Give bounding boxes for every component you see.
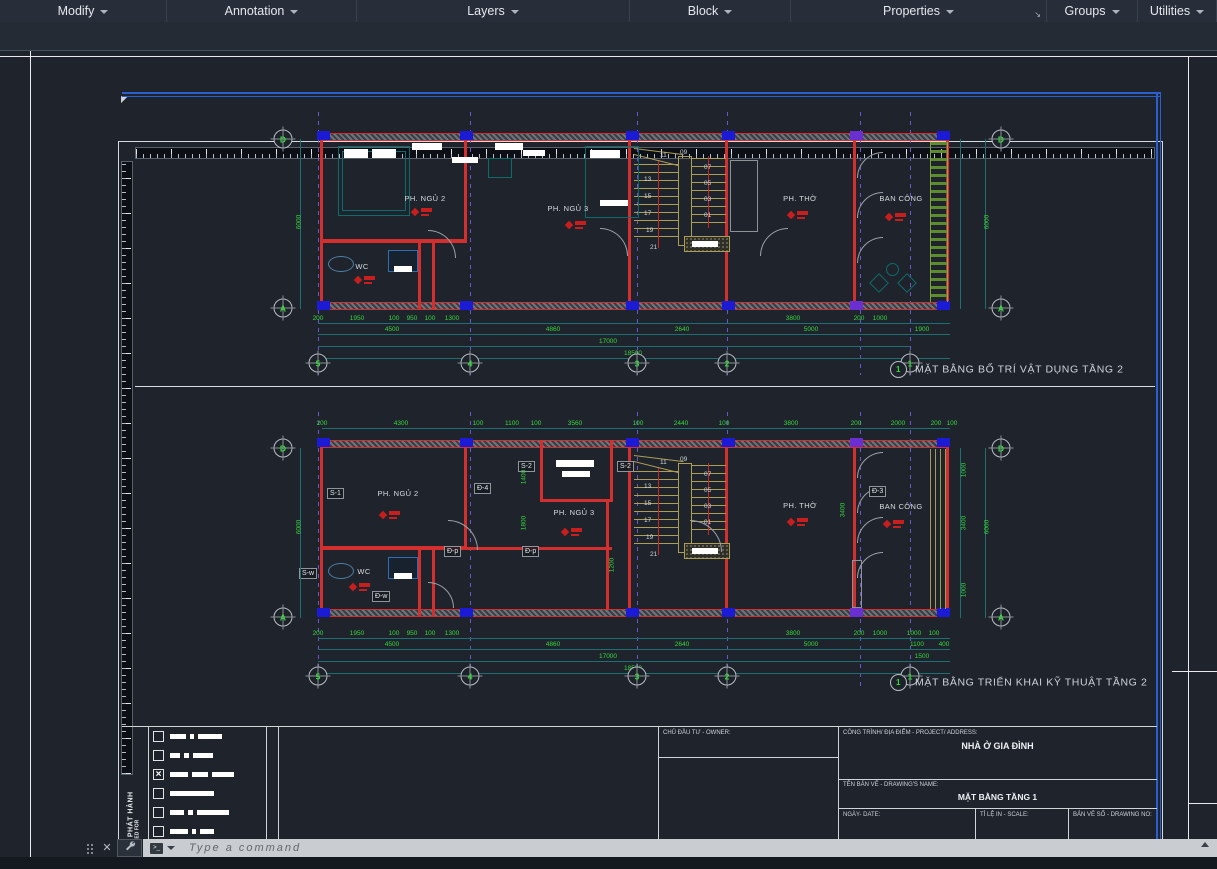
title-block-line bbox=[838, 779, 1157, 780]
dimension-label: 100 bbox=[947, 420, 958, 427]
column-marker bbox=[317, 438, 330, 447]
component-tag: Đ-3 bbox=[869, 486, 886, 497]
stair-tread bbox=[634, 503, 678, 504]
sheet-blue-border-line bbox=[1160, 92, 1161, 841]
dimension-label-vertical: 1800 bbox=[521, 516, 528, 530]
stair-step-number: 21 bbox=[650, 244, 657, 251]
stair-step-number: 19 bbox=[646, 227, 653, 234]
column-marker bbox=[626, 608, 639, 617]
wall bbox=[320, 440, 323, 617]
grid-axis-line bbox=[910, 112, 911, 375]
issue-checkbox[interactable] bbox=[153, 807, 164, 818]
dimension-label: 1950 bbox=[350, 630, 364, 637]
stair-step-number: 07 bbox=[704, 164, 711, 171]
dimension-label: 4860 bbox=[546, 326, 560, 333]
column-marker bbox=[937, 438, 950, 447]
chevron-down-icon bbox=[511, 10, 519, 14]
stair-tread bbox=[692, 465, 726, 466]
application-window: ModifyAnnotationLayersBlockProperties↘Gr… bbox=[0, 0, 1217, 869]
layout-viewport-line bbox=[1188, 56, 1189, 857]
issue-text-bar bbox=[212, 772, 234, 777]
dimension-label: 3800 bbox=[786, 630, 800, 637]
issue-text-bar bbox=[170, 791, 214, 796]
stair-step-number: 17 bbox=[644, 210, 651, 217]
command-input-bar[interactable]: >_ Type a command bbox=[143, 839, 1217, 857]
furniture-whitebar bbox=[394, 266, 412, 272]
stair-tread bbox=[634, 495, 678, 496]
stair-step-number: 19 bbox=[646, 534, 653, 541]
column-marker bbox=[850, 608, 863, 617]
dimension-label: 100 bbox=[719, 420, 730, 427]
dimension-label: 200 bbox=[931, 420, 942, 427]
stair-step-number: 03 bbox=[704, 503, 711, 510]
column-marker bbox=[937, 131, 950, 140]
dimension-label: 200 bbox=[313, 315, 324, 322]
grid-bubble-3: 3 bbox=[628, 667, 647, 686]
stair-tread bbox=[634, 204, 678, 205]
wall bbox=[464, 133, 467, 243]
column-marker bbox=[722, 301, 735, 310]
wrench-icon bbox=[124, 839, 136, 857]
ribbon-tab-bar: ModifyAnnotationLayersBlockProperties↘Gr… bbox=[0, 0, 1217, 22]
owner-label: CHỦ ĐẦU TƯ - OWNER: bbox=[663, 730, 731, 737]
furniture-whitebar bbox=[600, 200, 628, 206]
menu-tab-properties[interactable]: Properties↘ bbox=[791, 0, 1047, 22]
ribbon-panel-body bbox=[0, 22, 1217, 51]
column-marker bbox=[460, 131, 473, 140]
menu-tab-label: Modify bbox=[58, 4, 95, 18]
dimension-label: 200 bbox=[317, 420, 328, 427]
room-label: WC bbox=[355, 263, 368, 271]
stair-tread bbox=[692, 206, 726, 207]
plan-title-bubble: 1 bbox=[890, 361, 907, 378]
dimension-label: 100 bbox=[425, 630, 436, 637]
dimension-label: 17000 bbox=[599, 653, 617, 660]
menu-tab-label: Properties bbox=[883, 4, 940, 18]
dimension-label: 200 bbox=[851, 420, 862, 427]
issue-text-bar bbox=[184, 753, 189, 758]
wall bbox=[610, 440, 613, 501]
stair-tread bbox=[634, 479, 678, 480]
furniture-whitebar bbox=[394, 573, 412, 579]
title-block-line bbox=[278, 726, 279, 841]
stair-step-number: 05 bbox=[704, 180, 711, 187]
dimension-label: 1100 bbox=[505, 420, 519, 427]
column-marker bbox=[626, 131, 639, 140]
scale-label: TỈ LỆ IN - SCALE: bbox=[980, 812, 1029, 819]
dimension-label-vertical: 1400 bbox=[521, 470, 528, 484]
stair-step-number: 05 bbox=[704, 487, 711, 494]
furniture-circ bbox=[886, 263, 899, 276]
issue-text-bar bbox=[170, 829, 188, 834]
column-marker bbox=[460, 608, 473, 617]
menu-tab-modify[interactable]: Modify bbox=[0, 0, 167, 22]
grid-bubble-A: A bbox=[992, 608, 1011, 627]
dimension-label: 4300 bbox=[394, 420, 408, 427]
stair-step-number: 13 bbox=[644, 176, 651, 183]
title-block-line bbox=[658, 726, 659, 841]
column-marker bbox=[850, 438, 863, 447]
grid-bubble-D: D bbox=[992, 130, 1011, 149]
dimension-label-vertical: 6000 bbox=[296, 215, 303, 229]
panel-launcher-icon[interactable]: ↘ bbox=[1034, 11, 1041, 19]
issue-checkbox[interactable] bbox=[153, 731, 164, 742]
issue-text-bar bbox=[193, 753, 213, 758]
project-value: NHÀ Ở GIA ĐÌNH bbox=[838, 741, 1157, 751]
dimension-label: 100 bbox=[633, 420, 644, 427]
grid-bubble-3: 3 bbox=[628, 354, 647, 373]
furniture-louver bbox=[930, 449, 948, 609]
dimension-label: 950 bbox=[407, 630, 418, 637]
dimension-label: 2640 bbox=[675, 641, 689, 648]
dimension-line-vertical bbox=[960, 139, 961, 309]
dimension-label: 4500 bbox=[385, 641, 399, 648]
stair-stringer bbox=[658, 160, 659, 248]
stair-tread bbox=[634, 220, 678, 221]
drawing-no-label: BẢN VẼ SỐ - DRAWING NO: bbox=[1073, 812, 1152, 819]
plan-title-text: MẶT BẰNG TRIỂN KHAI KỸ THUẬT TẦNG 2 bbox=[915, 676, 1147, 688]
furniture-whitebar bbox=[412, 143, 442, 150]
command-bar-customize-button[interactable] bbox=[117, 839, 142, 857]
sheet-blue-border-line bbox=[122, 92, 1160, 94]
dimension-label: 5000 bbox=[804, 326, 818, 333]
dimension-label: 1000 bbox=[873, 315, 887, 322]
chevron-down-icon bbox=[100, 10, 108, 14]
bottom-edge-strip bbox=[0, 857, 1217, 869]
dimension-label-vertical: 1000 bbox=[961, 463, 968, 477]
column-marker bbox=[460, 301, 473, 310]
stair-step-number: 13 bbox=[644, 483, 651, 490]
grid-bubble-D: D bbox=[992, 439, 1011, 458]
issue-text-bar bbox=[170, 810, 184, 815]
command-scroll-up-icon[interactable] bbox=[1201, 842, 1209, 847]
grid-bubble-D: D bbox=[274, 439, 293, 458]
stair-tread bbox=[634, 228, 678, 229]
elevation-marker bbox=[884, 518, 904, 530]
dimension-label: 1900 bbox=[915, 326, 929, 333]
command-bar-close-icon[interactable]: ✕ bbox=[100, 841, 114, 856]
furniture-grayrect bbox=[730, 160, 758, 232]
column-marker bbox=[850, 131, 863, 140]
grid-axis-line bbox=[318, 112, 319, 375]
dimension-label-vertical: 1000 bbox=[961, 583, 968, 597]
issue-text-bar bbox=[198, 734, 222, 739]
furniture-plant bbox=[930, 142, 948, 302]
column-marker bbox=[850, 301, 863, 310]
grid-bubble-D: D bbox=[274, 130, 293, 149]
grid-bubble-5: 5 bbox=[309, 354, 328, 373]
grid-axis-line bbox=[860, 112, 861, 375]
chevron-down-icon bbox=[1112, 10, 1120, 14]
issue-checkbox[interactable]: × bbox=[153, 769, 164, 780]
column-marker bbox=[626, 301, 639, 310]
menu-tab-label: Groups bbox=[1065, 4, 1106, 18]
issue-text-bar bbox=[188, 810, 193, 815]
furniture-whitebar bbox=[590, 150, 620, 158]
stair-step-number: 01 bbox=[704, 212, 711, 219]
component-tag: Đ-p bbox=[522, 546, 539, 557]
dimension-label: 1100 bbox=[910, 641, 924, 648]
dimension-label: 4500 bbox=[385, 326, 399, 333]
elevation-marker bbox=[380, 509, 400, 521]
layout-viewport-line bbox=[0, 56, 1217, 57]
dimension-label: 400 bbox=[939, 641, 950, 648]
dimension-label: 1000 bbox=[873, 630, 887, 637]
furniture-whitebar bbox=[562, 471, 590, 477]
stair-tread bbox=[692, 513, 726, 514]
stair-tread bbox=[692, 222, 726, 223]
wall bbox=[540, 499, 613, 502]
dimension-label-vertical: 3400 bbox=[840, 503, 847, 517]
grid-bubble-A: A bbox=[274, 608, 293, 627]
sheet-blue-border-line bbox=[122, 96, 1160, 97]
issue-text-bar bbox=[200, 829, 214, 834]
grid-bubble-5: 5 bbox=[309, 667, 328, 686]
dimension-label: 100 bbox=[929, 630, 940, 637]
menu-tab-groups[interactable]: Groups bbox=[1047, 0, 1138, 22]
elevation-marker bbox=[566, 219, 586, 231]
dimension-label-vertical: 1200 bbox=[609, 558, 616, 572]
dimension-label-vertical: 6000 bbox=[984, 215, 991, 229]
stair-tread bbox=[692, 174, 726, 175]
project-label: CÔNG TRÌNH/ ĐỊA ĐIỂM - PROJECT/ ADDRESS: bbox=[843, 730, 978, 737]
menu-tab-annotation[interactable]: Annotation bbox=[167, 0, 357, 22]
chevron-down-icon bbox=[724, 10, 732, 14]
room-label: PH. THỜ bbox=[783, 502, 817, 510]
issue-checkbox[interactable] bbox=[153, 788, 164, 799]
room-label: PH. NGỦ 3 bbox=[553, 509, 594, 517]
column-marker bbox=[460, 438, 473, 447]
title-block-line bbox=[1068, 808, 1069, 841]
dimension-label: 1500 bbox=[915, 653, 929, 660]
dimension-label: 3560 bbox=[568, 420, 582, 427]
room-label: PH. NGỦ 3 bbox=[547, 205, 588, 213]
chevron-down-icon bbox=[1196, 10, 1204, 14]
menu-tab-label: Utilities bbox=[1150, 4, 1190, 18]
issue-text-bar bbox=[197, 810, 229, 815]
component-tag: S-w bbox=[299, 568, 317, 579]
stair-tread bbox=[634, 196, 678, 197]
stair-mat-label-bar bbox=[692, 241, 718, 247]
grid-bubble-A: A bbox=[992, 299, 1011, 318]
elevation-marker bbox=[788, 516, 808, 528]
dimension-label: 3800 bbox=[784, 420, 798, 427]
dimension-label: 950 bbox=[407, 315, 418, 322]
stair-tread bbox=[634, 212, 678, 213]
column-marker bbox=[937, 608, 950, 617]
room-label: PH. THỜ bbox=[783, 195, 817, 203]
stair-tread bbox=[634, 535, 678, 536]
column-marker bbox=[317, 608, 330, 617]
stair-step-number: 15 bbox=[644, 500, 651, 507]
component-tag: Đ-w bbox=[372, 591, 390, 602]
dimension-label: 2640 bbox=[675, 326, 689, 333]
menu-tab-label: Annotation bbox=[225, 4, 285, 18]
dimension-label: 100 bbox=[425, 315, 436, 322]
column-marker bbox=[722, 438, 735, 447]
furniture-tealrect bbox=[342, 151, 406, 211]
dimension-label: 1300 bbox=[445, 315, 459, 322]
furniture-whitebar bbox=[344, 149, 368, 158]
grid-bubble-4: 4 bbox=[461, 667, 480, 686]
issue-text-bar bbox=[170, 734, 186, 739]
room-label: WC bbox=[357, 568, 370, 576]
dimension-label: 1300 bbox=[445, 630, 459, 637]
menu-tab-label: Layers bbox=[467, 4, 505, 18]
issue-text-bar bbox=[190, 734, 194, 739]
drawing-canvas[interactable]: ◤ 1109131517192107050301PH. NGỦ 2WCPH. N… bbox=[0, 51, 1217, 857]
stair-tread bbox=[692, 158, 726, 159]
date-label: NGÀY- DATE: bbox=[843, 812, 880, 819]
stair-tread bbox=[634, 172, 678, 173]
plan-title-text: MẶT BẰNG BỐ TRÍ VẬT DỤNG TẦNG 2 bbox=[915, 363, 1124, 375]
dimension-label: 200 bbox=[854, 315, 865, 322]
chevron-down-icon bbox=[946, 10, 954, 14]
grid-bubble-2: 2 bbox=[718, 667, 737, 686]
stair-step-number: 09 bbox=[680, 149, 687, 156]
issue-text-bar bbox=[170, 753, 180, 758]
stair-tread bbox=[634, 511, 678, 512]
dimension-line bbox=[318, 649, 950, 650]
stair-step-number: 21 bbox=[650, 551, 657, 558]
command-prompt-icon: >_ bbox=[150, 843, 163, 854]
stair-tread bbox=[692, 497, 726, 498]
grid-bubble-A: A bbox=[274, 299, 293, 318]
title-block-line bbox=[658, 757, 838, 758]
command-bar-drag-handle[interactable] bbox=[86, 843, 94, 855]
issue-checkbox[interactable] bbox=[153, 750, 164, 761]
dimension-label: 100 bbox=[473, 420, 484, 427]
component-tag: Đ-p bbox=[444, 546, 461, 557]
dimension-label-vertical: 6000 bbox=[984, 520, 991, 534]
room-label: BAN CÔNG bbox=[879, 503, 922, 511]
command-history-chevron-icon[interactable] bbox=[167, 846, 175, 850]
dimension-label: 3800 bbox=[786, 315, 800, 322]
dimension-label: 2440 bbox=[674, 420, 688, 427]
stair-step-number: 11 bbox=[660, 152, 667, 159]
layout-viewport-line bbox=[1172, 671, 1217, 672]
dimension-label: 4860 bbox=[546, 641, 560, 648]
elevation-marker bbox=[350, 581, 370, 593]
dimension-label: 1950 bbox=[350, 315, 364, 322]
stair-tread bbox=[634, 188, 678, 189]
title-block-line bbox=[838, 808, 1157, 809]
elevation-marker bbox=[412, 206, 432, 218]
stair-step-number: 11 bbox=[660, 459, 667, 466]
column-marker bbox=[317, 131, 330, 140]
furniture-tealrect bbox=[488, 158, 512, 178]
grid-bubble-4: 4 bbox=[461, 354, 480, 373]
component-tag: S-1 bbox=[327, 488, 344, 499]
dimension-label: 100 bbox=[389, 630, 400, 637]
furniture-whitebar bbox=[495, 143, 523, 150]
title-block-line bbox=[838, 726, 839, 841]
issue-checkbox[interactable] bbox=[153, 826, 164, 837]
dimension-label: 2000 bbox=[891, 420, 905, 427]
furniture-grayrect bbox=[852, 560, 862, 608]
elevation-marker bbox=[886, 211, 906, 223]
column-marker bbox=[722, 131, 735, 140]
furniture-toilet bbox=[328, 256, 354, 272]
furniture-whitebar bbox=[452, 157, 478, 163]
title-block-line bbox=[975, 808, 976, 841]
dimension-label: 200 bbox=[854, 630, 865, 637]
drawing-name-label: TÊN BẢN VẼ - DRAWING'S NAME: bbox=[843, 782, 939, 789]
dimension-line bbox=[318, 638, 950, 639]
stair-step-number: 07 bbox=[704, 471, 711, 478]
component-tag: S-2 bbox=[617, 461, 634, 472]
stair-step-number: 15 bbox=[644, 193, 651, 200]
wall bbox=[853, 140, 856, 303]
room-label: BAN CÔNG bbox=[879, 195, 922, 203]
dimension-line bbox=[318, 323, 950, 324]
stair-tread bbox=[634, 487, 678, 488]
dimension-label: 17000 bbox=[599, 338, 617, 345]
elevation-marker bbox=[355, 274, 375, 286]
dimension-label: 100 bbox=[531, 420, 542, 427]
wall bbox=[606, 500, 609, 610]
wall bbox=[540, 440, 543, 501]
sheet-vertical-ruler-graphic bbox=[121, 161, 133, 775]
stair-well bbox=[678, 156, 692, 246]
plan-title: 1MẶT BẰNG TRIỂN KHAI KỸ THUẬT TẦNG 2 bbox=[890, 674, 1147, 691]
issue-text-bar bbox=[170, 772, 188, 777]
layout-viewport-line bbox=[135, 386, 1155, 387]
stair-step-number: 17 bbox=[644, 517, 651, 524]
room-label: PH. NGỦ 2 bbox=[377, 490, 418, 498]
furniture-toilet bbox=[328, 563, 354, 579]
stair-stringer bbox=[658, 467, 659, 555]
stair-tread bbox=[692, 190, 726, 191]
menu-tab-utilities[interactable]: Utilities bbox=[1138, 0, 1217, 22]
dimension-label-vertical: 6000 bbox=[296, 520, 303, 534]
issue-text-bar bbox=[192, 829, 196, 834]
stair-tread bbox=[634, 543, 678, 544]
dimension-label: 5000 bbox=[804, 641, 818, 648]
dimension-line bbox=[318, 661, 950, 662]
furniture-whitebar bbox=[523, 150, 545, 156]
menu-tab-layers[interactable]: Layers bbox=[357, 0, 630, 22]
title-block-line bbox=[266, 726, 267, 841]
column-marker bbox=[722, 608, 735, 617]
column-marker bbox=[937, 301, 950, 310]
stair-tread bbox=[634, 519, 678, 520]
command-input-placeholder[interactable]: Type a command bbox=[189, 842, 301, 854]
stair-tread bbox=[634, 180, 678, 181]
furniture-whitebar bbox=[556, 460, 594, 467]
grid-bubble-2: 2 bbox=[718, 354, 737, 373]
stair-tread bbox=[634, 527, 678, 528]
grid-axis-line bbox=[470, 112, 471, 375]
chevron-down-icon bbox=[290, 10, 298, 14]
stair-tread bbox=[634, 236, 678, 237]
issue-text-bar bbox=[192, 772, 208, 777]
dimension-label: 200 bbox=[313, 630, 324, 637]
sheet-blue-border-line bbox=[1156, 92, 1158, 841]
dimension-label: 1000 bbox=[907, 630, 921, 637]
wall bbox=[418, 239, 421, 310]
wall bbox=[320, 133, 323, 310]
plan-title-bubble: 1 bbox=[890, 674, 907, 691]
dimension-line bbox=[318, 334, 950, 335]
stair-tread bbox=[692, 481, 726, 482]
room-label: PH. NGỦ 2 bbox=[404, 195, 445, 203]
stair-step-number: 09 bbox=[680, 456, 687, 463]
elevation-marker bbox=[788, 209, 808, 221]
plan-title: 1MẶT BẰNG BỐ TRÍ VẬT DỤNG TẦNG 2 bbox=[890, 361, 1124, 378]
menu-tab-block[interactable]: Block bbox=[630, 0, 791, 22]
column-marker bbox=[626, 438, 639, 447]
